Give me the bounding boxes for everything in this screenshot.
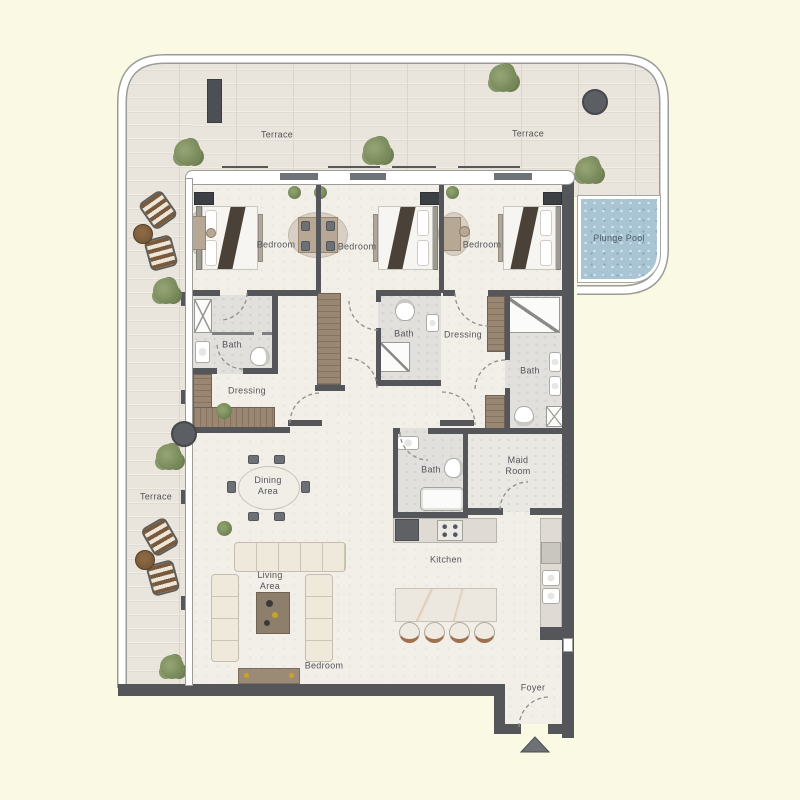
wall [443, 290, 455, 296]
window-tick [458, 166, 520, 168]
terrace-label: Terrace [261, 129, 293, 140]
corridor-wardrobe [317, 293, 341, 385]
bath-label: Bath [394, 328, 414, 339]
wall [272, 290, 278, 374]
bush [575, 157, 602, 184]
dining-chair [274, 512, 285, 521]
bottom-wall [118, 684, 505, 696]
bush [153, 278, 179, 304]
wall [315, 385, 345, 391]
round-table [171, 421, 197, 447]
pillow [417, 240, 429, 266]
pillow [417, 210, 429, 236]
dressing-label: Dressing [444, 329, 482, 340]
toilet [250, 347, 270, 366]
window-tick [222, 166, 268, 168]
dining-chair [227, 481, 236, 493]
entrance-arrow [521, 737, 549, 752]
sink [426, 314, 439, 332]
nightstand [420, 192, 440, 205]
plant [288, 186, 301, 199]
vanity-desk [192, 216, 206, 250]
pillow [205, 240, 217, 266]
kitchen-label: Kitchen [430, 554, 462, 565]
bar-stool [424, 622, 445, 643]
wall [463, 434, 468, 518]
wall [505, 388, 510, 433]
bar-stool [474, 622, 495, 643]
closet [485, 395, 505, 430]
decor [266, 600, 273, 607]
kitchen-appliance [541, 542, 561, 564]
window-tick [328, 166, 380, 168]
decor [244, 673, 249, 678]
wall [376, 380, 441, 386]
bedroom-label: Bedroom [257, 239, 296, 250]
pillow [540, 210, 552, 236]
wall [376, 290, 441, 296]
wall [376, 328, 381, 386]
dressing-label: Dressing [228, 385, 266, 396]
kitchen-sink [542, 570, 560, 586]
wall [440, 420, 474, 426]
planter-box [207, 79, 222, 123]
desk-chair [326, 241, 335, 251]
side-table [135, 550, 155, 570]
shower [380, 342, 410, 372]
decor [264, 620, 270, 626]
sink [397, 436, 419, 450]
plunge-pool: Plunge Pool [578, 196, 660, 282]
window-tick [392, 166, 436, 168]
wall [428, 428, 565, 434]
wall [192, 427, 290, 433]
bar-stool [399, 622, 420, 643]
wall [192, 368, 217, 374]
bar-stool [449, 622, 470, 643]
toilet [444, 458, 464, 478]
wall [439, 176, 444, 293]
sofa [234, 542, 346, 572]
toilet [514, 406, 534, 426]
right-wall [562, 176, 574, 738]
wall [393, 512, 468, 518]
wall [247, 290, 318, 296]
plant [446, 186, 459, 199]
washer [546, 406, 563, 427]
bed-bench [258, 214, 263, 262]
desk-chair [301, 221, 310, 231]
sofa [211, 574, 239, 662]
bush [156, 444, 182, 470]
sliding-door [494, 173, 532, 180]
bush [363, 137, 391, 165]
wall [288, 420, 322, 426]
bedroom-label: Bedroom [305, 660, 344, 671]
decor [289, 673, 294, 678]
terrace-label: Terrace [140, 491, 172, 502]
wall [530, 508, 562, 515]
vanity-stool [206, 228, 216, 238]
foyer-wall [494, 724, 521, 734]
bath-label: Bath [421, 464, 441, 475]
sink [549, 352, 561, 372]
nightstand [194, 192, 214, 205]
bush [489, 64, 517, 92]
floor-plan: Plunge Pool [0, 0, 800, 800]
wardrobe [193, 407, 275, 428]
kitchen-appliance [395, 519, 419, 541]
foyer-label: Foyer [521, 682, 546, 693]
round-table [582, 89, 608, 115]
kitchen-sink [542, 588, 560, 604]
bath-divider [212, 332, 254, 335]
wall [488, 290, 565, 296]
dining-chair [248, 512, 259, 521]
wall [192, 290, 220, 296]
desk-stool [459, 226, 470, 237]
wardrobe [487, 296, 505, 352]
plant [216, 403, 232, 419]
sliding-door [350, 173, 386, 180]
sofa [305, 574, 333, 662]
toilet [395, 299, 415, 321]
wall [505, 293, 510, 360]
maid-room-label: Maid Room [497, 455, 539, 478]
bath-label: Bath [520, 365, 540, 376]
wall [463, 508, 503, 515]
wall [243, 368, 278, 374]
dining-chair [301, 481, 310, 493]
desk [443, 217, 461, 251]
bush [174, 139, 201, 166]
desk-chair [301, 241, 310, 251]
pillow [540, 240, 552, 266]
desk-chair [326, 221, 335, 231]
bush [160, 655, 184, 679]
stove [437, 520, 463, 541]
bath-label: Bath [222, 339, 242, 350]
shower [194, 299, 212, 333]
terrace-label: Terrace [512, 128, 544, 139]
foyer-wall [548, 724, 574, 734]
bed-bench [498, 214, 503, 262]
nightstand [543, 192, 562, 205]
bed-bench [373, 214, 378, 262]
living-area-label: Living Area [249, 570, 291, 593]
plunge-pool-label: Plunge Pool [593, 233, 645, 244]
plant [217, 521, 232, 536]
bedroom-label: Bedroom [463, 239, 502, 250]
sink [549, 376, 561, 396]
dining-chair [248, 455, 259, 464]
bedroom-label: Bedroom [338, 241, 377, 252]
right-wall-window [563, 638, 573, 652]
wall [393, 428, 398, 518]
wall [316, 176, 321, 293]
sliding-door [280, 173, 318, 180]
dining-chair [274, 455, 285, 464]
sink [195, 341, 210, 363]
bathtub [420, 487, 464, 511]
side-table [133, 224, 153, 244]
wall [376, 290, 381, 302]
shower [508, 297, 560, 333]
decor [272, 612, 278, 618]
kitchen-island [395, 588, 497, 622]
dining-area-label: Dining Area [247, 475, 289, 498]
